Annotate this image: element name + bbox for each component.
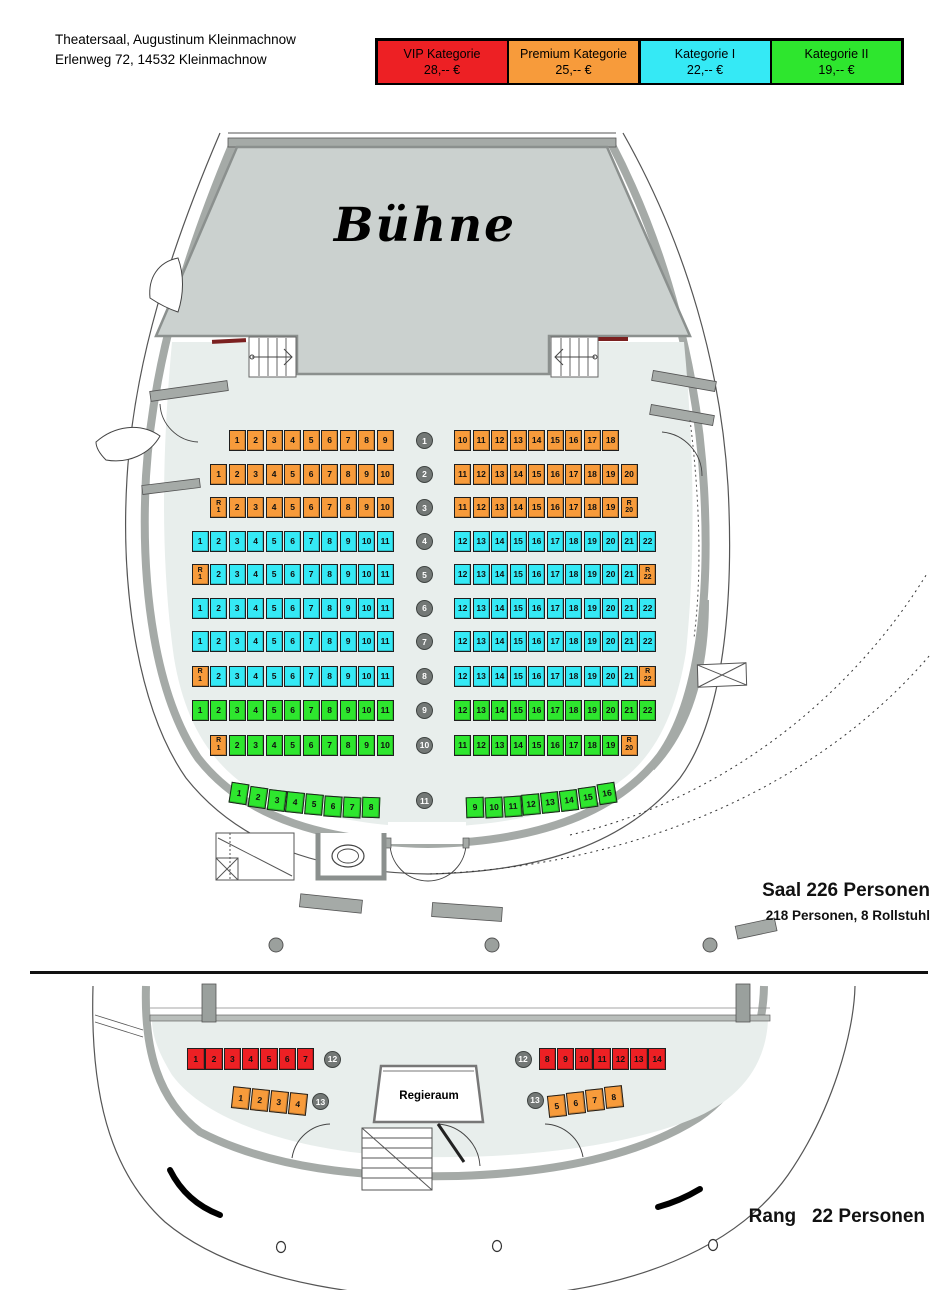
- seat-row7-2[interactable]: 2: [210, 631, 227, 652]
- seat-row7-4[interactable]: 4: [247, 631, 264, 652]
- seat-row6-6[interactable]: 6: [284, 598, 301, 619]
- seat-row12-9[interactable]: 9: [557, 1048, 575, 1070]
- door-arc-left: [390, 843, 428, 881]
- seat-row10-15[interactable]: 15: [528, 735, 545, 756]
- seat-row3-19[interactable]: 19: [602, 497, 619, 518]
- seat-row7-17[interactable]: 17: [547, 631, 564, 652]
- seat-row2-6[interactable]: 6: [303, 464, 320, 485]
- seat-row5-7[interactable]: 7: [303, 564, 320, 585]
- seat-row8-2[interactable]: 2: [210, 666, 227, 687]
- seat-row4-13[interactable]: 13: [473, 531, 490, 552]
- seat-row1-1[interactable]: 1: [229, 430, 246, 451]
- seat-row4-7[interactable]: 7: [303, 531, 320, 552]
- seat-row13-7[interactable]: 7: [585, 1088, 605, 1112]
- seat-row11-9[interactable]: 9: [466, 797, 485, 819]
- seat-row7-10[interactable]: 10: [358, 631, 375, 652]
- seat-row11-1[interactable]: 1: [228, 782, 249, 806]
- seat-row2-10[interactable]: 10: [377, 464, 394, 485]
- seat-row3-r1[interactable]: R1: [210, 497, 227, 518]
- row-number-badge-7: 7: [416, 633, 433, 650]
- seat-row6-21[interactable]: 21: [621, 598, 638, 619]
- rang-column-2: [493, 1241, 502, 1252]
- legend-category-1: Kategorie I 22,-- €: [641, 41, 770, 83]
- seat-row2-15[interactable]: 15: [528, 464, 545, 485]
- seat-row10-r1[interactable]: R1: [210, 735, 227, 756]
- seat-row13-2[interactable]: 2: [250, 1088, 270, 1112]
- seat-row1-15[interactable]: 15: [547, 430, 564, 451]
- seat-row8-14[interactable]: 14: [491, 666, 508, 687]
- seat-row3-12[interactable]: 12: [473, 497, 490, 518]
- seat-row13-1[interactable]: 1: [231, 1086, 251, 1110]
- seat-row2-16[interactable]: 16: [547, 464, 564, 485]
- legend-kat1-label: Kategorie I: [675, 46, 735, 62]
- seat-row10-19[interactable]: 19: [602, 735, 619, 756]
- seat-row3-4[interactable]: 4: [266, 497, 283, 518]
- seat-row4-9[interactable]: 9: [340, 531, 357, 552]
- seat-row9-1[interactable]: 1: [192, 700, 209, 721]
- seat-row11-12[interactable]: 12: [522, 793, 542, 816]
- row-number-badge-2: 2: [416, 466, 433, 483]
- seat-row6-20[interactable]: 20: [602, 598, 619, 619]
- seat-row5-2[interactable]: 2: [210, 564, 227, 585]
- seat-row6-13[interactable]: 13: [473, 598, 490, 619]
- seat-row5-17[interactable]: 17: [547, 564, 564, 585]
- seat-row10-2[interactable]: 2: [229, 735, 246, 756]
- rang-shell-connector: [95, 1015, 143, 1037]
- row-number-badge-9: 9: [416, 702, 433, 719]
- seat-row10-5[interactable]: 5: [284, 735, 301, 756]
- seat-row8-5[interactable]: 5: [266, 666, 283, 687]
- seat-row11-8[interactable]: 8: [361, 797, 380, 819]
- seat-row1-10[interactable]: 10: [454, 430, 471, 451]
- legend-category-vip: VIP Kategorie 28,-- €: [378, 41, 507, 83]
- seat-row7-11[interactable]: 11: [377, 631, 394, 652]
- seat-row11-10[interactable]: 10: [484, 796, 503, 818]
- seat-row10-3[interactable]: 3: [247, 735, 264, 756]
- seat-row5-13[interactable]: 13: [473, 564, 490, 585]
- seat-row3-8[interactable]: 8: [340, 497, 357, 518]
- seat-row9-5[interactable]: 5: [266, 700, 283, 721]
- seat-row11-13[interactable]: 13: [540, 791, 560, 814]
- seat-row9-20[interactable]: 20: [602, 700, 619, 721]
- seat-row13-6[interactable]: 6: [566, 1091, 586, 1115]
- seat-row12-7[interactable]: 7: [297, 1048, 315, 1070]
- legend-premium-label: Premium Kategorie: [520, 46, 627, 62]
- seat-row1-3[interactable]: 3: [266, 430, 283, 451]
- seat-row4-3[interactable]: 3: [229, 531, 246, 552]
- seat-row5-8[interactable]: 8: [321, 564, 338, 585]
- seat-row1-2[interactable]: 2: [247, 430, 264, 451]
- seat-row3-2[interactable]: 2: [229, 497, 246, 518]
- seat-row5-18[interactable]: 18: [565, 564, 582, 585]
- seat-row3-r20[interactable]: R20: [621, 497, 638, 518]
- row-number-badge-10: 10: [416, 737, 433, 754]
- seat-row9-8[interactable]: 8: [321, 700, 338, 721]
- rang-black-rail-left: [170, 1170, 220, 1215]
- seat-row12-12[interactable]: 12: [612, 1048, 630, 1070]
- legend-kat2-price: 19,-- €: [818, 62, 854, 78]
- seat-row4-1[interactable]: 1: [192, 531, 209, 552]
- seat-row6-14[interactable]: 14: [491, 598, 508, 619]
- seat-row9-21[interactable]: 21: [621, 700, 638, 721]
- seat-row7-14[interactable]: 14: [491, 631, 508, 652]
- seat-row8-7[interactable]: 7: [303, 666, 320, 687]
- seat-row6-9[interactable]: 9: [340, 598, 357, 619]
- seat-row9-7[interactable]: 7: [303, 700, 320, 721]
- seat-row3-16[interactable]: 16: [547, 497, 564, 518]
- door-leaf-upper-left: [150, 258, 183, 312]
- seat-row2-3[interactable]: 3: [247, 464, 264, 485]
- seat-row11-2[interactable]: 2: [247, 785, 268, 808]
- seat-row10-13[interactable]: 13: [491, 735, 508, 756]
- seat-row1-9[interactable]: 9: [377, 430, 394, 451]
- seat-row6-11[interactable]: 11: [377, 598, 394, 619]
- seat-row13-5[interactable]: 5: [547, 1094, 567, 1118]
- stage-stairs-left: [249, 337, 296, 377]
- seat-row9-10[interactable]: 10: [358, 700, 375, 721]
- seat-row8-21[interactable]: 21: [621, 666, 638, 687]
- seat-row4-5[interactable]: 5: [266, 531, 283, 552]
- seat-row11-11[interactable]: 11: [503, 795, 523, 817]
- row-number-badge-12: 12: [515, 1051, 532, 1068]
- seat-row11-15[interactable]: 15: [577, 785, 598, 808]
- seat-row5-19[interactable]: 19: [584, 564, 601, 585]
- door-jamb-right: [463, 838, 469, 848]
- seat-row5-5[interactable]: 5: [266, 564, 283, 585]
- seat-row13-8[interactable]: 8: [604, 1085, 624, 1109]
- seat-row10-17[interactable]: 17: [565, 735, 582, 756]
- column-2: [485, 938, 499, 952]
- seat-row3-9[interactable]: 9: [358, 497, 375, 518]
- seat-row5-10[interactable]: 10: [358, 564, 375, 585]
- seat-row6-3[interactable]: 3: [229, 598, 246, 619]
- seat-row10-16[interactable]: 16: [547, 735, 564, 756]
- seat-row5-r1[interactable]: R1: [192, 564, 209, 585]
- seat-row8-r1[interactable]: R1: [192, 666, 209, 687]
- seat-row5-12[interactable]: 12: [454, 564, 471, 585]
- seat-row1-11[interactable]: 11: [473, 430, 490, 451]
- seat-row5-16[interactable]: 16: [528, 564, 545, 585]
- seat-row8-11[interactable]: 11: [377, 666, 394, 687]
- seat-row6-2[interactable]: 2: [210, 598, 227, 619]
- seat-row4-12[interactable]: 12: [454, 531, 471, 552]
- seat-row12-1[interactable]: 1: [187, 1048, 205, 1070]
- seat-row12-2[interactable]: 2: [205, 1048, 223, 1070]
- seat-row4-10[interactable]: 10: [358, 531, 375, 552]
- seat-row5-r22[interactable]: R22: [639, 564, 656, 585]
- seat-row3-15[interactable]: 15: [528, 497, 545, 518]
- seat-row7-19[interactable]: 19: [584, 631, 601, 652]
- seat-row6-17[interactable]: 17: [547, 598, 564, 619]
- seat-row12-13[interactable]: 13: [630, 1048, 648, 1070]
- seat-row9-9[interactable]: 9: [340, 700, 357, 721]
- price-legend: VIP Kategorie 28,-- € Premium Kategorie …: [375, 38, 904, 85]
- seat-row12-3[interactable]: 3: [224, 1048, 242, 1070]
- seat-row4-20[interactable]: 20: [602, 531, 619, 552]
- seat-row9-19[interactable]: 19: [584, 700, 601, 721]
- seat-row7-6[interactable]: 6: [284, 631, 301, 652]
- wall-chunk-1: [299, 894, 362, 913]
- row-number-badge-8: 8: [416, 668, 433, 685]
- seat-row2-20[interactable]: 20: [621, 464, 638, 485]
- seat-row5-20[interactable]: 20: [602, 564, 619, 585]
- seat-row8-19[interactable]: 19: [584, 666, 601, 687]
- seat-row4-18[interactable]: 18: [565, 531, 582, 552]
- seat-row4-17[interactable]: 17: [547, 531, 564, 552]
- seat-row4-6[interactable]: 6: [284, 531, 301, 552]
- seat-row2-2[interactable]: 2: [229, 464, 246, 485]
- seat-row6-10[interactable]: 10: [358, 598, 375, 619]
- seat-row5-15[interactable]: 15: [510, 564, 527, 585]
- seat-row7-16[interactable]: 16: [528, 631, 545, 652]
- seat-row7-18[interactable]: 18: [565, 631, 582, 652]
- seat-row11-4[interactable]: 4: [285, 791, 305, 814]
- seat-row12-5[interactable]: 5: [260, 1048, 278, 1070]
- seat-row11-3[interactable]: 3: [266, 788, 287, 811]
- seat-row4-2[interactable]: 2: [210, 531, 227, 552]
- seat-row10-10[interactable]: 10: [377, 735, 394, 756]
- seat-row11-7[interactable]: 7: [342, 796, 361, 818]
- seat-row9-16[interactable]: 16: [528, 700, 545, 721]
- seat-row11-5[interactable]: 5: [304, 793, 324, 816]
- legend-category-2: Kategorie II 19,-- €: [772, 41, 901, 83]
- seat-row3-6[interactable]: 6: [303, 497, 320, 518]
- seat-row3-7[interactable]: 7: [321, 497, 338, 518]
- restroom: [318, 833, 384, 878]
- section-divider: [30, 971, 928, 974]
- seat-row3-13[interactable]: 13: [491, 497, 508, 518]
- seat-row6-5[interactable]: 5: [266, 598, 283, 619]
- seat-row9-11[interactable]: 11: [377, 700, 394, 721]
- seat-row9-4[interactable]: 4: [247, 700, 264, 721]
- seat-row9-6[interactable]: 6: [284, 700, 301, 721]
- seat-row8-15[interactable]: 15: [510, 666, 527, 687]
- seat-row6-8[interactable]: 8: [321, 598, 338, 619]
- seat-row6-16[interactable]: 16: [528, 598, 545, 619]
- seat-row12-11[interactable]: 11: [593, 1048, 611, 1070]
- seat-row3-14[interactable]: 14: [510, 497, 527, 518]
- seat-row2-4[interactable]: 4: [266, 464, 283, 485]
- seat-row2-14[interactable]: 14: [510, 464, 527, 485]
- seat-row5-14[interactable]: 14: [491, 564, 508, 585]
- legend-category-premium: Premium Kategorie 25,-- €: [509, 41, 638, 83]
- row-number-badge-3: 3: [416, 499, 433, 516]
- rang-column-3: [709, 1240, 718, 1251]
- venue-address: Theatersaal, Augustinum Kleinmachnow Erl…: [55, 30, 296, 70]
- seat-row10-12[interactable]: 12: [473, 735, 490, 756]
- seat-row8-3[interactable]: 3: [229, 666, 246, 687]
- seat-row4-14[interactable]: 14: [491, 531, 508, 552]
- seat-row10-r20[interactable]: R20: [621, 735, 638, 756]
- seat-row8-4[interactable]: 4: [247, 666, 264, 687]
- stage-edge-mark-right: [598, 337, 628, 341]
- seat-row2-19[interactable]: 19: [602, 464, 619, 485]
- seat-row12-4[interactable]: 4: [242, 1048, 260, 1070]
- seat-row10-4[interactable]: 4: [266, 735, 283, 756]
- seat-row4-8[interactable]: 8: [321, 531, 338, 552]
- seat-row3-17[interactable]: 17: [565, 497, 582, 518]
- seat-row9-2[interactable]: 2: [210, 700, 227, 721]
- seat-row10-14[interactable]: 14: [510, 735, 527, 756]
- seat-row1-14[interactable]: 14: [528, 430, 545, 451]
- seat-row8-r22[interactable]: R22: [639, 666, 656, 687]
- storage-room: [216, 833, 294, 880]
- seat-row8-17[interactable]: 17: [547, 666, 564, 687]
- seat-row10-6[interactable]: 6: [303, 735, 320, 756]
- seat-row10-11[interactable]: 11: [454, 735, 471, 756]
- stage-label: Bühne: [225, 198, 625, 253]
- seat-row2-5[interactable]: 5: [284, 464, 301, 485]
- seat-row12-8[interactable]: 8: [539, 1048, 557, 1070]
- seat-row7-5[interactable]: 5: [266, 631, 283, 652]
- seat-row7-13[interactable]: 13: [473, 631, 490, 652]
- seat-row7-20[interactable]: 20: [602, 631, 619, 652]
- seat-row9-13[interactable]: 13: [473, 700, 490, 721]
- seat-row9-14[interactable]: 14: [491, 700, 508, 721]
- seat-row4-22[interactable]: 22: [639, 531, 656, 552]
- seat-row13-3[interactable]: 3: [269, 1090, 289, 1114]
- seat-row1-8[interactable]: 8: [358, 430, 375, 451]
- seat-row11-16[interactable]: 16: [596, 782, 617, 806]
- seat-row5-9[interactable]: 9: [340, 564, 357, 585]
- seat-row11-14[interactable]: 14: [559, 788, 580, 811]
- seat-row6-18[interactable]: 18: [565, 598, 582, 619]
- hall-capacity-title: Saal 226 Personen: [600, 880, 930, 902]
- seat-row5-11[interactable]: 11: [377, 564, 394, 585]
- seat-row4-19[interactable]: 19: [584, 531, 601, 552]
- rang-column-1: [277, 1242, 286, 1253]
- column-1: [269, 938, 283, 952]
- seat-row3-5[interactable]: 5: [284, 497, 301, 518]
- seat-row6-19[interactable]: 19: [584, 598, 601, 619]
- seat-row7-12[interactable]: 12: [454, 631, 471, 652]
- seat-row7-3[interactable]: 3: [229, 631, 246, 652]
- seat-row9-15[interactable]: 15: [510, 700, 527, 721]
- seat-row4-21[interactable]: 21: [621, 531, 638, 552]
- seat-row7-8[interactable]: 8: [321, 631, 338, 652]
- seat-row8-10[interactable]: 10: [358, 666, 375, 687]
- seat-row12-10[interactable]: 10: [575, 1048, 593, 1070]
- seat-row7-15[interactable]: 15: [510, 631, 527, 652]
- seat-row1-12[interactable]: 12: [491, 430, 508, 451]
- row-number-badge-5: 5: [416, 566, 433, 583]
- seat-row9-12[interactable]: 12: [454, 700, 471, 721]
- row-number-badge-13: 13: [527, 1092, 544, 1109]
- seat-row7-21[interactable]: 21: [621, 631, 638, 652]
- seat-row4-4[interactable]: 4: [247, 531, 264, 552]
- seat-row8-6[interactable]: 6: [284, 666, 301, 687]
- legend-vip-label: VIP Kategorie: [404, 46, 481, 62]
- seat-row5-6[interactable]: 6: [284, 564, 301, 585]
- seat-row10-8[interactable]: 8: [340, 735, 357, 756]
- seat-row2-7[interactable]: 7: [321, 464, 338, 485]
- seat-row7-7[interactable]: 7: [303, 631, 320, 652]
- stage-back-wall: [228, 138, 616, 147]
- seat-row8-20[interactable]: 20: [602, 666, 619, 687]
- seat-row1-5[interactable]: 5: [303, 430, 320, 451]
- seat-row11-6[interactable]: 6: [323, 795, 343, 817]
- venue-name: Theatersaal, Augustinum Kleinmachnow: [55, 30, 296, 50]
- seat-row1-13[interactable]: 13: [510, 430, 527, 451]
- rang-capacity-title: Rang 22 Personen: [600, 1206, 925, 1228]
- seat-row3-11[interactable]: 11: [454, 497, 471, 518]
- seat-row7-9[interactable]: 9: [340, 631, 357, 652]
- seat-row8-8[interactable]: 8: [321, 666, 338, 687]
- seat-row4-15[interactable]: 15: [510, 531, 527, 552]
- seat-row6-4[interactable]: 4: [247, 598, 264, 619]
- seating-plan-page: Theatersaal, Augustinum Kleinmachnow Erl…: [0, 0, 940, 1290]
- legend-vip-price: 28,-- €: [424, 62, 460, 78]
- seat-row1-18[interactable]: 18: [602, 430, 619, 451]
- venue-street: Erlenweg 72, 14532 Kleinmachnow: [55, 50, 296, 70]
- seat-row2-8[interactable]: 8: [340, 464, 357, 485]
- seat-row9-17[interactable]: 17: [547, 700, 564, 721]
- seat-row1-16[interactable]: 16: [565, 430, 582, 451]
- seat-row1-7[interactable]: 7: [340, 430, 357, 451]
- seat-row5-3[interactable]: 3: [229, 564, 246, 585]
- seat-row10-18[interactable]: 18: [584, 735, 601, 756]
- seat-row9-18[interactable]: 18: [565, 700, 582, 721]
- seat-row3-10[interactable]: 10: [377, 497, 394, 518]
- seat-row2-18[interactable]: 18: [584, 464, 601, 485]
- legend-premium-price: 25,-- €: [555, 62, 591, 78]
- legend-kat2-label: Kategorie II: [805, 46, 869, 62]
- seat-row2-12[interactable]: 12: [473, 464, 490, 485]
- seat-row4-11[interactable]: 11: [377, 531, 394, 552]
- seat-row10-7[interactable]: 7: [321, 735, 338, 756]
- seat-row2-9[interactable]: 9: [358, 464, 375, 485]
- stage-stairs-right: [551, 337, 598, 377]
- seat-row7-22[interactable]: 22: [639, 631, 656, 652]
- row-number-badge-4: 4: [416, 533, 433, 550]
- rang-pillar-right: [736, 984, 750, 1022]
- seat-row4-16[interactable]: 16: [528, 531, 545, 552]
- seat-row2-1[interactable]: 1: [210, 464, 227, 485]
- seat-row9-3[interactable]: 3: [229, 700, 246, 721]
- seat-row2-17[interactable]: 17: [565, 464, 582, 485]
- seat-row1-6[interactable]: 6: [321, 430, 338, 451]
- seat-row10-9[interactable]: 9: [358, 735, 375, 756]
- column-3: [703, 938, 717, 952]
- seat-row3-3[interactable]: 3: [247, 497, 264, 518]
- seat-row12-6[interactable]: 6: [279, 1048, 297, 1070]
- seat-row6-1[interactable]: 1: [192, 598, 209, 619]
- seat-row12-14[interactable]: 14: [648, 1048, 666, 1070]
- seat-row9-22[interactable]: 22: [639, 700, 656, 721]
- seat-row8-9[interactable]: 9: [340, 666, 357, 687]
- seat-row8-18[interactable]: 18: [565, 666, 582, 687]
- seat-row7-1[interactable]: 1: [192, 631, 209, 652]
- rang-black-rail-right: [658, 1189, 700, 1207]
- rang-stairs: [362, 1128, 432, 1190]
- seat-row13-4[interactable]: 4: [288, 1092, 308, 1116]
- seat-row2-13[interactable]: 13: [491, 464, 508, 485]
- seat-row6-22[interactable]: 22: [639, 598, 656, 619]
- seat-row2-11[interactable]: 11: [454, 464, 471, 485]
- seat-row1-17[interactable]: 17: [584, 430, 601, 451]
- seat-row3-18[interactable]: 18: [584, 497, 601, 518]
- rang-pillar-left: [202, 984, 216, 1022]
- seat-row6-12[interactable]: 12: [454, 598, 471, 619]
- seat-row8-16[interactable]: 16: [528, 666, 545, 687]
- seat-row8-13[interactable]: 13: [473, 666, 490, 687]
- seat-row1-4[interactable]: 4: [284, 430, 301, 451]
- seat-row6-15[interactable]: 15: [510, 598, 527, 619]
- seat-row5-4[interactable]: 4: [247, 564, 264, 585]
- seat-row8-12[interactable]: 12: [454, 666, 471, 687]
- seat-row6-7[interactable]: 7: [303, 598, 320, 619]
- seat-row5-21[interactable]: 21: [621, 564, 638, 585]
